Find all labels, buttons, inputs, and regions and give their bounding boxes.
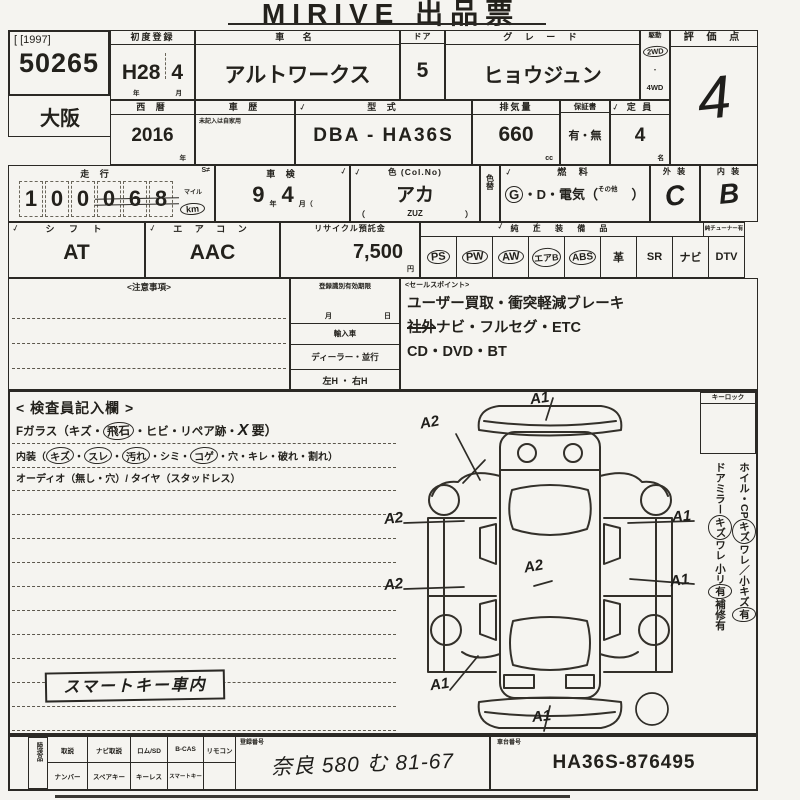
inspector-dash-line: [12, 586, 396, 587]
equipment-box: 純 正 装 備 品 純チューナー有 PS PW AW エアB ABS 革 SR …: [420, 222, 745, 278]
first-reg-month: 4: [171, 61, 183, 85]
side-note-text: ドアミラー: [714, 462, 726, 515]
equipment-item: ABS: [568, 249, 596, 266]
color-change-label: 色替: [485, 174, 496, 214]
equipment-item: AW: [497, 249, 524, 265]
accessory-cell: ロム/SD: [130, 737, 167, 763]
sales-line-2: 社外ナビ・フルセグ・ETC: [407, 316, 757, 337]
displacement-label: 排気量: [473, 101, 559, 115]
fuel-label: 燃 料: [501, 166, 649, 179]
inspector-dash-line: [12, 610, 396, 611]
fglass-end: 要）: [252, 423, 278, 438]
model-value: DBA - HA36S: [296, 125, 471, 147]
color-label: 色 (Col.No): [351, 166, 479, 179]
equipment-item: DTV: [708, 237, 744, 277]
interior-end: ・穴・キレ・破れ・割れ）: [218, 452, 338, 463]
keylock-box: キーロック: [700, 392, 756, 454]
transport-label: 陸送品: [33, 742, 43, 786]
fuel-rest: ・D・電気（: [524, 184, 598, 203]
side-note-text: ホイル・CP: [738, 462, 750, 519]
exterior-value: C: [649, 177, 701, 215]
interior-circled: キズ: [45, 446, 74, 465]
interior-sep: ・シミ・: [150, 452, 190, 463]
equipment-sub-label: 純チューナー有: [703, 223, 744, 236]
registration-id-box: 登録識別有効期限 月 日 輸入車 ディーラー・並行 左H ・ 右H: [290, 278, 400, 390]
odometer-digit: 0: [71, 181, 95, 217]
first-reg-year-suffix: 年: [133, 87, 140, 97]
interior-value: B: [700, 176, 759, 213]
drive-4wd: 4WD: [647, 83, 664, 92]
fglass-circled: 飛石: [103, 421, 135, 441]
smart-key-stamp: スマートキー車内: [45, 669, 225, 702]
door-value: 5: [401, 59, 444, 83]
sales-points-box: <セールスポイント> ユーザー買取・衝突軽減ブレーキ 社外ナビ・フルセグ・ETC…: [400, 278, 758, 390]
fuel-gas: G: [505, 185, 524, 203]
first-registration-label: 初度登録: [111, 31, 194, 45]
damage-mark: A2: [419, 412, 441, 432]
sales-line-1: ユーザー買取・衝突軽減ブレーキ: [407, 292, 757, 313]
history-label: 車 歴: [196, 101, 294, 115]
interior-circled: 汚れ: [121, 446, 150, 465]
year-code: [ [1997]: [10, 32, 108, 48]
accessory-cell: リモコン: [203, 737, 235, 763]
accessory-cell: ナンバー: [48, 763, 87, 789]
grade-value: ヒョウジュン: [446, 59, 639, 88]
car-name-label: 車 名: [196, 31, 399, 45]
exterior-label: 外 装: [651, 166, 699, 178]
keylock-label: キーロック: [701, 393, 755, 404]
region-box: 大阪: [8, 96, 111, 137]
equipment-item: エアB: [532, 247, 562, 268]
interior-condition-line: 内装（キズ・スレ・汚れ・シミ・コゲ・穴・キレ・破れ・割れ）: [16, 447, 338, 464]
sheet-title: MIRIVE 出品票: [226, 0, 556, 32]
door-label: ドア: [401, 31, 444, 44]
aircon-label: エ ア コ ン: [146, 223, 279, 236]
year-suffix: 年: [180, 152, 187, 162]
color-value: アカ: [351, 180, 479, 207]
interior-box: 内 装 B: [700, 165, 758, 222]
dealer-label: ディーラー・並行: [291, 345, 399, 370]
transport-label-box: 陸送品: [28, 737, 48, 789]
equipment-item: 革: [600, 237, 636, 277]
history-box: 車 歴 未記入は自家用: [195, 100, 295, 165]
sales-label: <セールスポイント>: [401, 279, 757, 291]
notes-label: <注意事項>: [9, 279, 289, 293]
audio-tire-line: オーディオ（無し・穴）/ タイヤ（スタッドレス）: [16, 470, 241, 485]
recycle-suffix: 円: [407, 264, 414, 274]
chassis-number-label: 車台番号: [497, 737, 521, 746]
notes-dash-line: [12, 368, 286, 369]
notes-dash-line: [12, 318, 286, 319]
side-note-circled: 有: [707, 584, 732, 600]
damage-mark: A1: [669, 571, 690, 591]
shift-value: AT: [9, 241, 144, 265]
mileage-tag: S≠: [201, 167, 210, 174]
accessory-cell: スマートキー: [167, 763, 203, 789]
warranty-box: 保証書 有・無: [560, 100, 610, 165]
fglass-pre: Fガラス（キズ・: [16, 426, 103, 438]
drive-2wd: 2WD: [642, 45, 667, 58]
handle-label: 左H ・ 右H: [291, 370, 399, 392]
fglass-mid: ・ヒビ・リペア跡・: [134, 426, 238, 438]
side-notes: ホイル・CPキズワレ／小キズ有 ドアミラーキズワレ 小リ有補修有: [702, 462, 756, 734]
year-label: 西 暦: [111, 101, 194, 115]
registration-number-value: 奈良 580 む 81-67: [236, 744, 490, 783]
damage-mark: A2: [383, 575, 404, 594]
drive-dot: ・: [652, 67, 659, 74]
inspection-month: 4: [282, 182, 294, 208]
side-note-text: ワレ 小リ: [714, 540, 726, 585]
inspector-dash-line: [12, 658, 396, 659]
fglass-line: Fガラス（キズ・飛石・ヒビ・リペア跡・X 要）: [16, 420, 278, 440]
color-box: 色 (Col.No) アカ （ ZUZ ）: [350, 165, 480, 222]
recycle-deposit-box: リサイクル預託金 7,500 円: [280, 222, 420, 278]
registration-number-label: 登録番号: [240, 737, 264, 746]
exterior-box: 外 装 C: [650, 165, 700, 222]
interior-circled: スレ: [83, 446, 112, 465]
mileage-box: 走 行 S≠ 100068 マイル km: [8, 165, 215, 222]
score-box: 評 価 点 4: [670, 30, 758, 165]
inspection-year: 9: [252, 182, 264, 208]
damage-mark: A1: [429, 675, 450, 695]
aircon-box: エ ア コ ン AAC: [145, 222, 280, 278]
equipment-item: PW: [461, 249, 488, 265]
odometer-digit: 0: [45, 181, 69, 217]
equipment-cells: PS PW AW エアB ABS 革 SR ナビ DTV: [421, 237, 744, 277]
notes-dash-line: [12, 343, 286, 344]
sales-line-2-strike: 社外: [407, 320, 436, 336]
color-code-close: ）: [465, 209, 473, 220]
shift-label: シ フ ト: [9, 223, 144, 236]
inspector-dash-line: [12, 467, 396, 468]
accessory-grid: 取説 ナビ取説 ロム/SD B-CAS リモコン ナンバー スペアキー キーレス…: [48, 737, 235, 789]
inspector-dash-line: [12, 730, 396, 731]
equipment-item: PS: [427, 249, 451, 265]
color-code: ZUZ: [407, 209, 423, 220]
grade-box: グ レ ー ド ヒョウジュン: [445, 30, 640, 100]
expiry-month: 月: [325, 311, 332, 321]
inspector-dash-line: [12, 490, 396, 491]
damage-mark: A1: [529, 389, 550, 409]
sales-line-3: CD・DVD・BT: [407, 340, 757, 361]
inspector-dash-line: [12, 443, 396, 444]
drive-box: 駆動 2WD ・ 4WD: [640, 30, 670, 100]
registration-number-box: 登録番号 奈良 580 む 81-67: [235, 735, 490, 791]
recycle-label: リサイクル預託金: [281, 223, 419, 235]
chassis-number-value: HA36S-876495: [491, 752, 757, 774]
side-note-text: ワレ／小キズ: [738, 544, 750, 607]
scan-edge-line: [55, 795, 570, 798]
damage-mark: A2: [523, 556, 545, 576]
inspector-title: < 検査員記入欄 >: [16, 398, 134, 418]
warranty-value: 有・無: [561, 127, 609, 143]
inspection-label: 車 検: [216, 167, 349, 180]
damage-mark: A2: [383, 509, 404, 528]
mile-label: マイル: [184, 190, 202, 196]
interior-pre: 内装（: [16, 452, 46, 463]
notes-box: <注意事項>: [8, 278, 290, 390]
inspection-year-suffix: 年: [270, 199, 277, 209]
color-change-box: 色替: [480, 165, 500, 222]
odometer-digit: 8: [149, 181, 173, 217]
equipment-label: 純 正 装 備 品: [421, 223, 703, 236]
side-note-circled: キズ: [707, 514, 733, 541]
fuel-box: 燃 料 G ・D・電気（ その他 ）: [500, 165, 650, 222]
sales-line-2-rest: ナビ・フルセグ・ETC: [436, 320, 581, 336]
interior-sep: ・: [74, 452, 84, 463]
side-note-text: 補修有: [714, 599, 726, 631]
chassis-number-box: 車台番号 HA36S-876495: [490, 735, 758, 791]
mileage-label: 走 行: [9, 167, 184, 180]
shift-box: シ フ ト AT: [8, 222, 145, 278]
accessory-cell: [203, 763, 235, 789]
first-reg-era: H28: [122, 61, 161, 85]
auction-sheet: MIRIVE 出品票 [ [1997] 50265 大阪 初度登録 H28 4 …: [0, 0, 800, 800]
title-underline: [228, 23, 546, 25]
accessory-cell: 取説: [48, 737, 87, 763]
capacity-value: 4: [611, 125, 669, 147]
interior-circled: コゲ: [189, 446, 218, 465]
equipment-item: ナビ: [672, 237, 708, 277]
odometer-digit: 1: [19, 181, 43, 217]
color-code-open: （: [357, 209, 365, 220]
inspector-dash-line: [12, 538, 396, 539]
car-name-box: 車 名 アルトワークス: [195, 30, 400, 100]
accessory-cell: スペアキー: [87, 763, 130, 789]
first-registration-box: 初度登録 H28 4 年 月: [110, 30, 195, 100]
side-note-circled: 有: [731, 606, 756, 622]
auction-number-box: [ [1997] 50265: [8, 30, 110, 96]
auction-number: 50265: [10, 48, 108, 79]
fuel-other: その他: [598, 183, 618, 193]
side-note-circled: キズ: [731, 518, 757, 545]
km-label: km: [180, 202, 206, 216]
displacement-value: 660: [473, 123, 559, 147]
displacement-suffix: cc: [545, 155, 553, 162]
damage-mark: A1: [531, 707, 552, 726]
inspector-dash-line: [12, 562, 396, 563]
accessory-cell: キーレス: [130, 763, 167, 789]
car-name-value: アルトワークス: [196, 59, 399, 89]
model-label: 型 式: [296, 101, 471, 115]
score-value: 4: [668, 59, 761, 137]
drive-label: 駆動: [641, 31, 669, 41]
accessory-cell: ナビ取説: [87, 737, 130, 763]
model-box: 型 式 DBA - HA36S: [295, 100, 472, 165]
grade-label: グ レ ー ド: [446, 31, 639, 45]
aircon-value: AAC: [146, 241, 279, 265]
warranty-label: 保証書: [561, 101, 609, 113]
inspector-dash-line: [12, 514, 396, 515]
damage-mark: A1: [671, 507, 691, 525]
fuel-close: ）: [632, 184, 645, 203]
import-label: 輸入車: [291, 324, 399, 345]
region: 大阪: [9, 96, 111, 131]
inspector-dash-line: [12, 634, 396, 635]
car-damage-diagram: A1 A2 A2 A2 A2 A1 A1 A1 A1: [400, 390, 700, 735]
expiry-day: 日: [384, 311, 391, 321]
displacement-box: 排気量 660 cc: [472, 100, 560, 165]
capacity-suffix: 名: [658, 152, 665, 162]
first-reg-month-suffix: 月: [176, 87, 183, 97]
interior-sep: ・: [112, 452, 122, 463]
equipment-item: SR: [636, 237, 672, 277]
door-box: ドア 5: [400, 30, 445, 100]
accessory-cell: B-CAS: [167, 737, 203, 763]
year-value: 2016: [111, 125, 194, 147]
inspection-month-suffix: 月（: [299, 199, 313, 209]
inspection-box: 車 検 9 年 4 月（: [215, 165, 350, 222]
expiry-label: 登録識別有効期限: [291, 279, 399, 290]
inspector-dash-line: [12, 706, 396, 707]
fglass-x-mark: X: [238, 422, 249, 439]
score-label: 評 価 点: [671, 31, 757, 47]
history-note: 未記入は自家用: [196, 115, 294, 126]
year-box: 西 暦 2016 年: [110, 100, 195, 165]
recycle-value: 7,500: [353, 241, 403, 264]
